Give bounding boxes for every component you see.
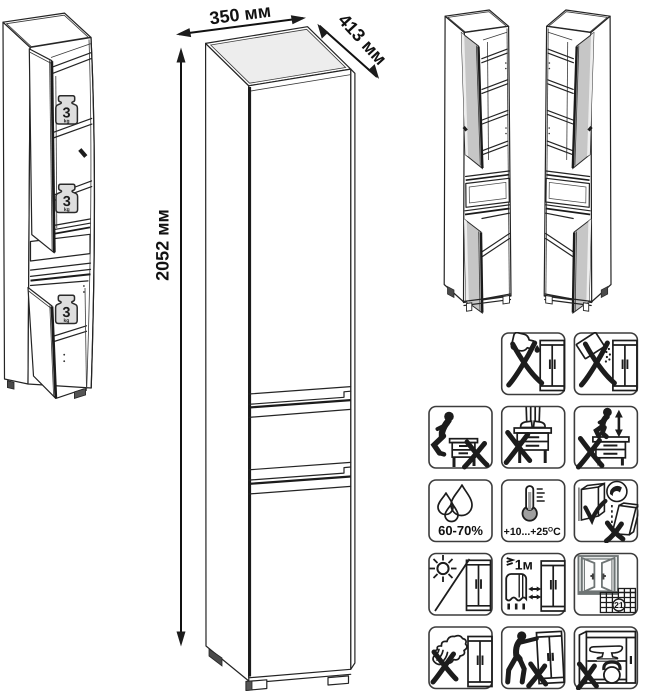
svg-text:60-70%: 60-70% [438, 523, 483, 538]
svg-text:1м: 1м [515, 557, 533, 573]
svg-text:2052 мм: 2052 мм [153, 209, 173, 281]
svg-text:21: 21 [614, 600, 624, 610]
svg-text:+10...+25OC: +10...+25OC [504, 526, 561, 538]
